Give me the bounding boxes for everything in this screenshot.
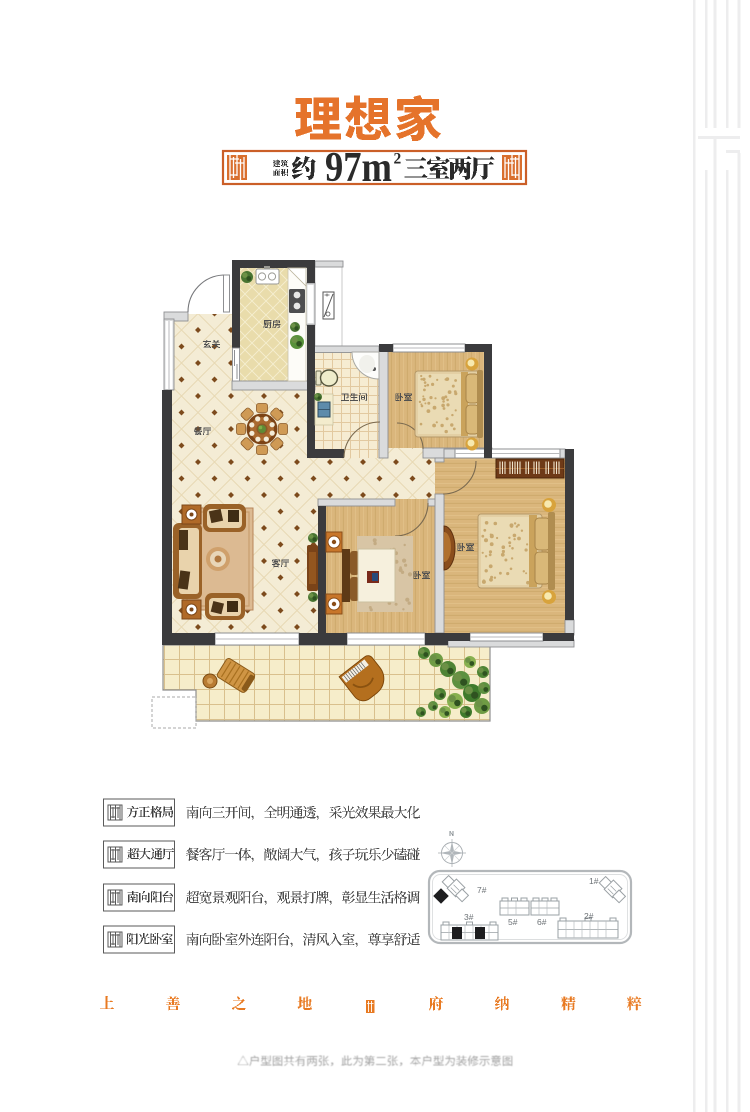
svg-text:97m: 97m: [325, 145, 392, 191]
svg-text:2: 2: [394, 151, 402, 168]
svg-text:3#: 3#: [464, 912, 474, 922]
svg-text:6#: 6#: [537, 917, 547, 927]
svg-text:2#: 2#: [584, 911, 594, 921]
svg-text:1#: 1#: [589, 876, 599, 886]
svg-text:7#: 7#: [477, 885, 487, 895]
svg-text:5#: 5#: [508, 917, 518, 927]
